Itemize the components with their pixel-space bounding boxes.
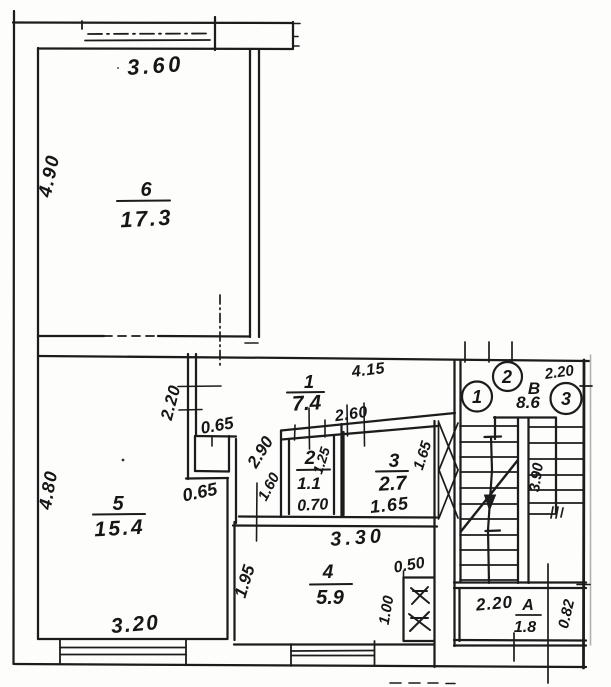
svg-text:0.50: 0.50 [392, 554, 426, 576]
svg-text:1.65: 1.65 [369, 493, 410, 517]
svg-text:1: 1 [472, 387, 482, 407]
svg-text:17.3: 17.3 [120, 205, 174, 233]
svg-text:4: 4 [322, 562, 334, 583]
svg-text:8.6: 8.6 [516, 393, 540, 412]
svg-text:15.4: 15.4 [94, 516, 146, 542]
svg-text:1: 1 [304, 372, 314, 392]
svg-text:1.60: 1.60 [255, 469, 284, 503]
svg-text:3: 3 [389, 451, 400, 472]
svg-text:0.82: 0.82 [555, 597, 578, 630]
svg-text:4.15: 4.15 [350, 360, 387, 381]
svg-text:3.30: 3.30 [329, 525, 385, 551]
svg-text:2.20: 2.20 [157, 383, 185, 423]
svg-text:5.9: 5.9 [316, 587, 345, 609]
svg-text:2: 2 [501, 367, 512, 387]
svg-text:2.7: 2.7 [377, 472, 408, 496]
svg-text:6: 6 [140, 179, 152, 201]
svg-text:1.65: 1.65 [410, 438, 435, 472]
svg-text:1.1: 1.1 [297, 474, 321, 493]
svg-text:3.20: 3.20 [110, 611, 161, 638]
svg-text:5: 5 [112, 493, 124, 515]
svg-text:7.4: 7.4 [291, 391, 322, 416]
svg-text:А: А [521, 597, 534, 614]
svg-text:0.65: 0.65 [181, 479, 220, 506]
svg-text:0.70: 0.70 [297, 496, 329, 515]
svg-text:2.20: 2.20 [474, 592, 514, 614]
svg-text:2.20: 2.20 [543, 362, 576, 383]
svg-text:3.60: 3.60 [126, 51, 184, 80]
svg-text:1.00: 1.00 [376, 594, 398, 626]
svg-text:3.90: 3.90 [526, 461, 547, 493]
svg-text:4.90: 4.90 [35, 153, 65, 200]
svg-text:3: 3 [561, 389, 571, 409]
svg-text:0.65: 0.65 [199, 413, 235, 438]
svg-text:2.90: 2.90 [243, 433, 277, 472]
svg-text:1.8: 1.8 [514, 619, 536, 636]
